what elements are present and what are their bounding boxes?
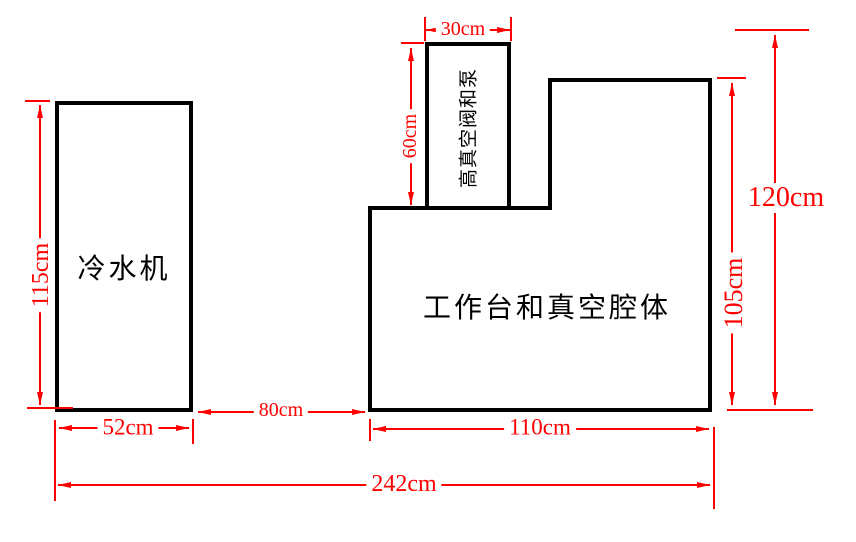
equipment-outlines	[57, 44, 710, 410]
workbench-outline	[370, 80, 710, 410]
equipment-layout-diagram: 冷水机 工作台和真空腔体 高真空阀和泵 30cm 60cm 115cm 52cm…	[0, 0, 856, 542]
dim-30-value: 30cm	[436, 18, 490, 40]
chiller-label: 冷水机	[77, 256, 170, 284]
dim-52-value: 52cm	[97, 415, 158, 440]
dim-242-value: 242cm	[366, 471, 441, 497]
dim-105-value: 105cm	[720, 253, 748, 334]
dim-120-value: 120cm	[743, 183, 829, 213]
workbench-label: 工作台和真空腔体	[423, 295, 671, 323]
dim-60-value: 60cm	[399, 109, 421, 163]
dim-110-value: 110cm	[504, 415, 576, 440]
dim-115-value: 115cm	[28, 238, 54, 312]
pump-label: 高真空阀和泵	[460, 68, 479, 188]
dim-80-value: 80cm	[254, 399, 308, 421]
